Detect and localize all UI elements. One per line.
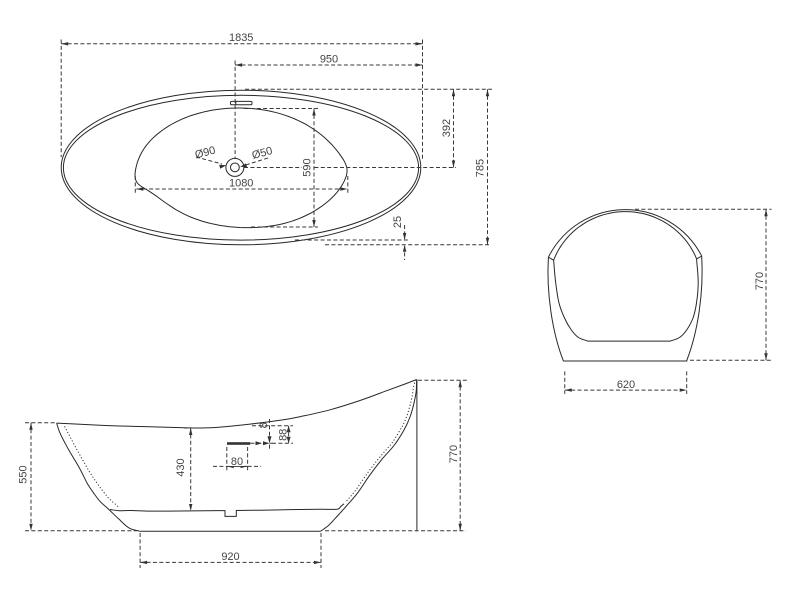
svg-text:620: 620 xyxy=(617,379,635,391)
svg-text:80: 80 xyxy=(231,456,243,468)
svg-text:1080: 1080 xyxy=(229,178,253,190)
svg-text:785: 785 xyxy=(475,159,487,177)
svg-text:25: 25 xyxy=(392,216,404,228)
svg-text:770: 770 xyxy=(754,272,766,290)
svg-text:920: 920 xyxy=(221,551,239,563)
svg-text:88: 88 xyxy=(277,429,289,441)
svg-text:430: 430 xyxy=(175,458,187,476)
svg-text:590: 590 xyxy=(302,158,314,176)
svg-text:8: 8 xyxy=(258,422,270,428)
svg-text:950: 950 xyxy=(320,53,338,65)
svg-text:550: 550 xyxy=(18,465,30,483)
svg-text:392: 392 xyxy=(441,119,453,137)
svg-text:770: 770 xyxy=(448,445,460,463)
svg-text:1835: 1835 xyxy=(229,32,253,44)
